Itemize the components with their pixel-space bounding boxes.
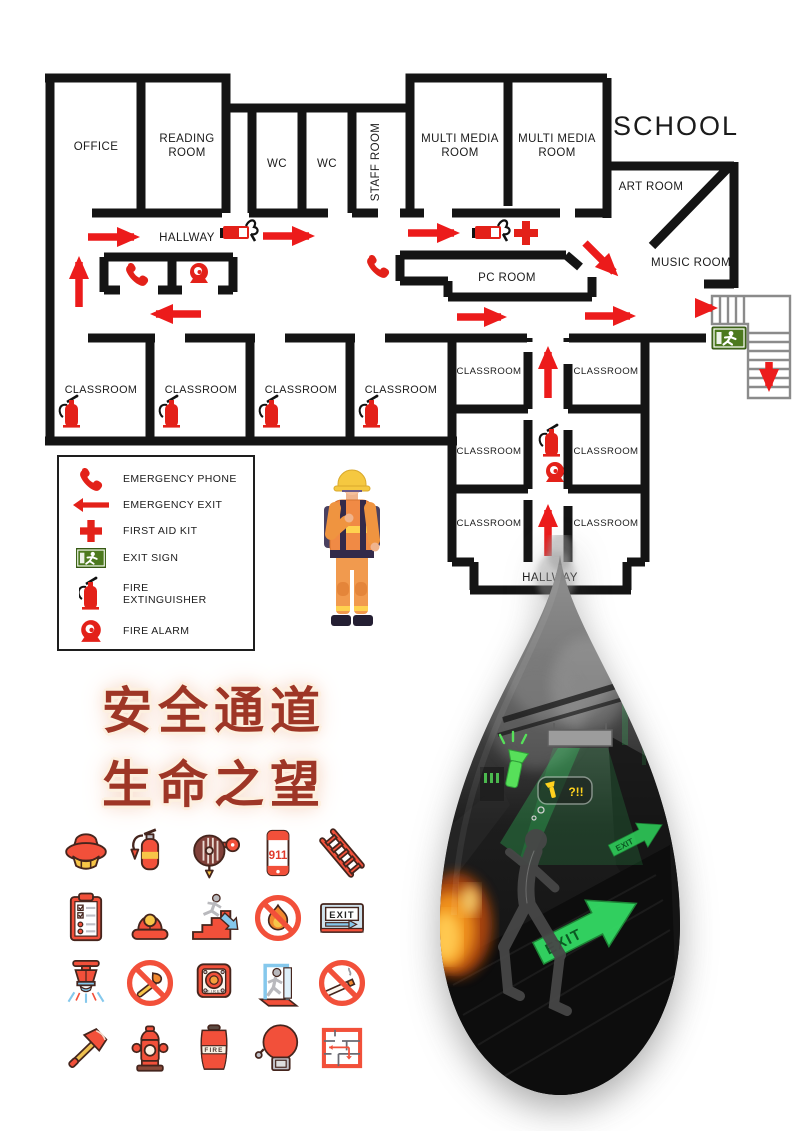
svg-text:ROOM: ROOM (538, 147, 575, 159)
room-label-wc-right: WC (317, 158, 337, 170)
room-label-wc-left: WC (267, 158, 287, 170)
firefighter-illustration (298, 450, 408, 650)
exit-sign-board-icon: EXIT (314, 890, 370, 946)
fire-hydrant-icon (122, 1020, 178, 1076)
room-label-music-room: MUSIC ROOM (651, 257, 731, 269)
svg-text:CLASSROOM: CLASSROOM (457, 366, 522, 377)
fire-bucket-icon: FIRE (186, 1020, 242, 1076)
svg-text:CLASSROOM: CLASSROOM (574, 518, 639, 529)
legend-item-emergency-exit: EMERGENCY EXIT (73, 497, 245, 513)
svg-text:CLASSROOM: CLASSROOM (457, 518, 522, 529)
exit-board-label: EXIT (329, 909, 354, 919)
legend-item-emergency-phone: EMERGENCY PHONE (73, 467, 245, 491)
no-matches-icon (122, 955, 178, 1011)
room-label-art-room: ART ROOM (619, 181, 684, 193)
room-label-office: OFFICE (74, 141, 119, 153)
slogan-line-2: 生命之望 (86, 748, 342, 822)
fire-extinguisher-icon (260, 395, 280, 428)
evacuation-poster: SCHOOL OFFICE READING ROOM WC WC STAFF R… (0, 0, 799, 1131)
emergency-siren-icon (122, 890, 178, 946)
room-label-multi-media-1: MULTI MEDIA (421, 133, 499, 145)
exit-sign-icon (76, 548, 106, 568)
evacuation-drop-scene: ?!! EXIT EXIT (408, 535, 712, 1127)
evacuation-stairs-icon (186, 890, 242, 946)
smoke-detector-icon (58, 825, 114, 881)
first-aid-kit-icon (514, 221, 538, 245)
svg-text:CLASSROOM: CLASSROOM (265, 384, 338, 396)
call-number-label: 911 (269, 848, 288, 861)
svg-text:CLASSROOM: CLASSROOM (165, 384, 238, 396)
svg-text:CLASSROOM: CLASSROOM (574, 366, 639, 377)
legend-panel: EMERGENCY PHONE EMERGENCY EXIT FIRST AID… (57, 455, 255, 651)
first-aid-kit-icon (80, 520, 102, 542)
fire-extinguisher-icon (360, 395, 380, 428)
fire-bell-icon (250, 1020, 306, 1076)
fire-alarm-icon (190, 263, 208, 283)
fire-extinguisher-icon (79, 575, 103, 613)
fire-alarm-button-icon: FIRE (186, 955, 242, 1011)
fire-axe-icon (58, 1020, 114, 1076)
hallway-top-label: HALLWAY (159, 232, 215, 244)
inspection-checklist-icon (58, 890, 114, 946)
exit-sign-icon (712, 327, 746, 349)
emergency-call-911-icon: 911 (250, 825, 306, 881)
legend-label: EMERGENCY PHONE (123, 473, 237, 485)
room-label-reading-room: READING (159, 133, 214, 145)
fire-ladder-icon (314, 825, 370, 881)
safety-icon-grid: 911 (54, 820, 376, 1080)
room-label-multi-media-2: MULTI MEDIA (518, 133, 596, 145)
school-title: SCHOOL (613, 111, 739, 141)
legend-item-exit-sign: EXIT SIGN (73, 548, 245, 568)
room-label-staff-room: STAFF ROOM (370, 123, 382, 202)
svg-text:ROOM: ROOM (441, 147, 478, 159)
legend-item-fire-extinguisher: FIRE EXTINGUISHER (73, 575, 245, 613)
no-smoking-icon (314, 955, 370, 1011)
fire-alarm-icon (79, 619, 103, 643)
emergency-exit-icon (73, 497, 109, 513)
emergency-phone-icon (367, 255, 389, 278)
emergency-phone-icon (126, 263, 148, 286)
emergency-exit-door-icon (250, 955, 306, 1011)
svg-text:CLASSROOM: CLASSROOM (457, 446, 522, 457)
fire-hose-box-icon (472, 220, 510, 241)
fire-alarm-icon (546, 462, 564, 482)
emergency-phone-icon (79, 467, 103, 491)
fire-sprinkler-icon (58, 955, 114, 1011)
svg-text:ROOM: ROOM (168, 147, 205, 159)
no-open-flame-icon (250, 890, 306, 946)
fire-hose-reel-icon (186, 825, 242, 881)
ceiling-exit-light (548, 730, 612, 746)
fire-button-label: FIRE (207, 988, 221, 993)
svg-text:CLASSROOM: CLASSROOM (574, 446, 639, 457)
legend-item-fire-alarm: FIRE ALARM (73, 619, 245, 643)
evacuation-plan-icon (314, 1020, 370, 1076)
fire-extinguisher-icon (122, 825, 178, 881)
fire-extinguisher-icon (60, 395, 80, 428)
room-label-pc-room: PC ROOM (478, 272, 536, 284)
fire-hose-box-icon (220, 220, 258, 241)
fire-bucket-label: FIRE (204, 1047, 223, 1054)
room-label-classroom: CLASSROOM (65, 384, 138, 396)
fire-extinguisher-icon (160, 395, 180, 428)
svg-text:CLASSROOM: CLASSROOM (365, 384, 438, 396)
fire-extinguisher-icon (540, 424, 560, 457)
slogan-line-1: 安全通道 (86, 674, 342, 748)
legend-item-first-aid: FIRST AID KIT (73, 520, 245, 542)
bubble-text: ?!! (568, 785, 583, 799)
safety-slogan: 安全通道 生命之望 (86, 674, 342, 822)
